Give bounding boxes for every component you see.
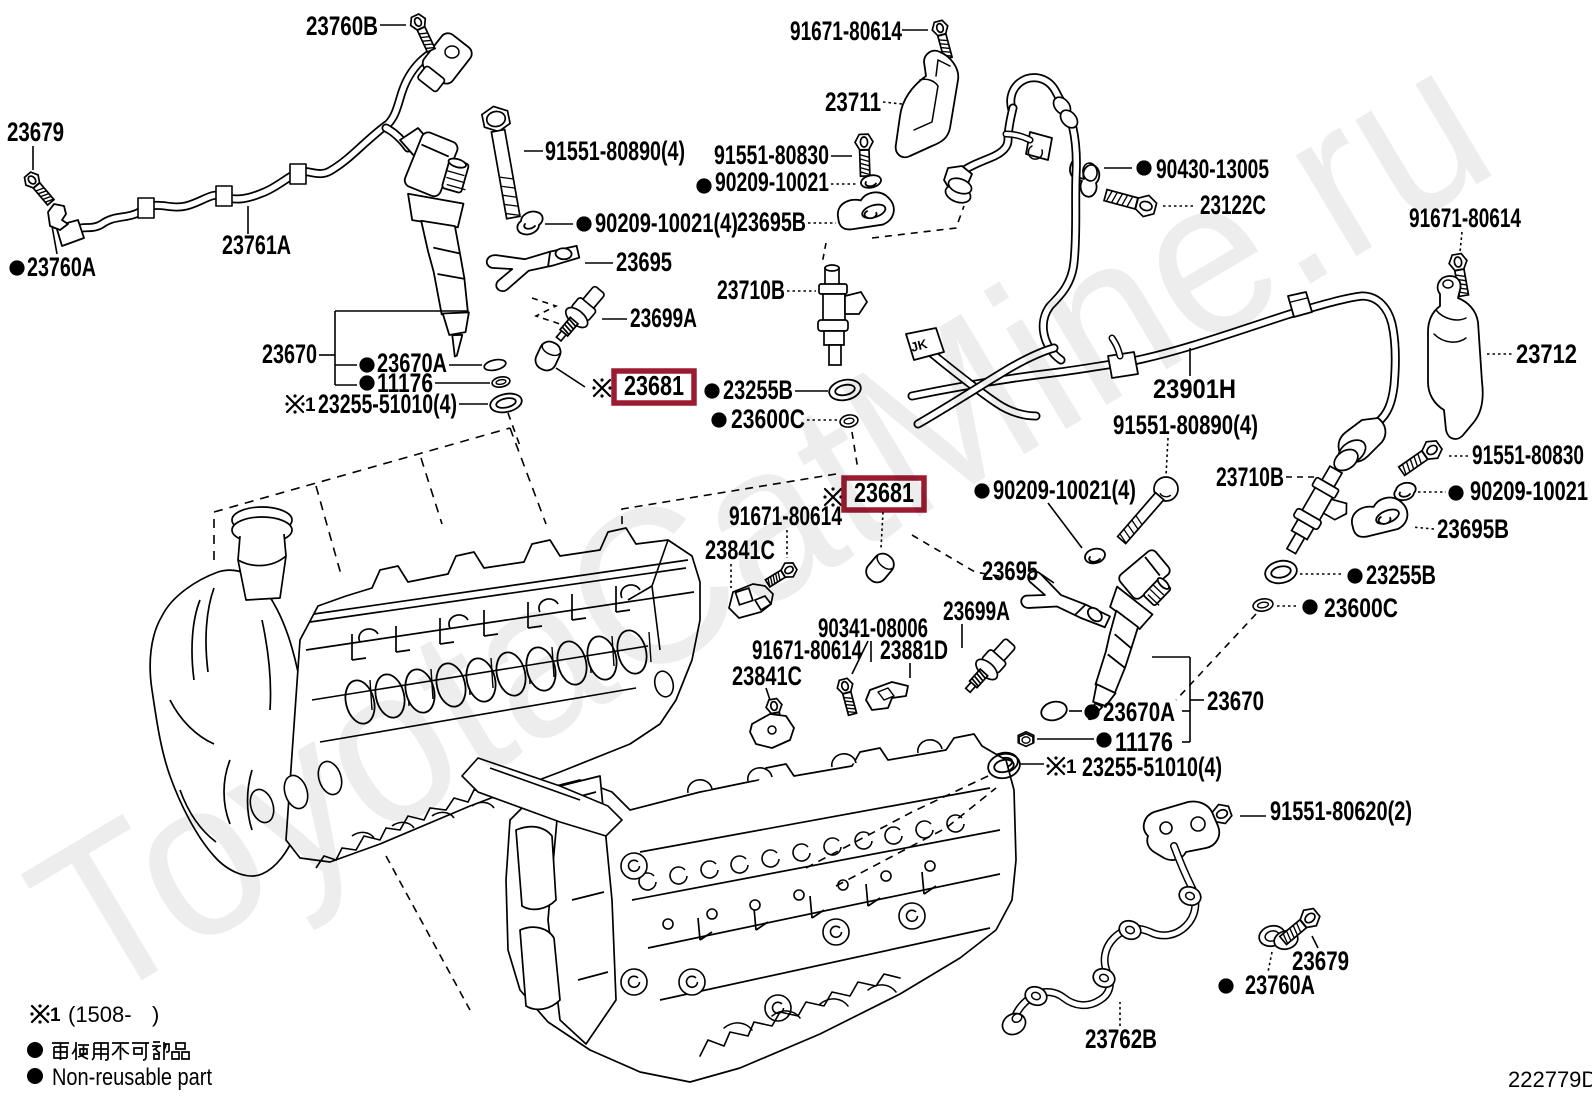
svg-text:23679: 23679 [7,117,64,147]
svg-text:23760A: 23760A [1245,970,1315,1000]
svg-text:23760A: 23760A [27,252,96,282]
svg-text:1: 1 [305,395,316,416]
svg-text:23712: 23712 [1516,339,1577,369]
svg-text:23681: 23681 [624,370,684,401]
svg-text:23255B: 23255B [1366,560,1436,590]
svg-text:91551-80890(4): 91551-80890(4) [545,136,685,166]
svg-text:90209-10021(4): 90209-10021(4) [595,208,738,238]
svg-text:1: 1 [50,1005,61,1026]
svg-text:23710B: 23710B [717,275,785,305]
svg-text:23600C: 23600C [1324,593,1398,623]
svg-text:23695: 23695 [982,556,1038,586]
svg-text:23711: 23711 [825,87,881,117]
svg-text:23670A: 23670A [1103,697,1175,727]
svg-text:90209-10021: 90209-10021 [1470,476,1588,506]
svg-text:23695: 23695 [616,247,672,277]
svg-text:23760B: 23760B [306,11,378,41]
svg-text:23695B: 23695B [1437,514,1509,544]
svg-text:23255-51010(4): 23255-51010(4) [318,389,457,419]
svg-text:91551-80830: 91551-80830 [714,140,829,170]
svg-text:90209-10021: 90209-10021 [715,167,829,197]
svg-text:23761A: 23761A [222,230,291,260]
svg-text:23699A: 23699A [943,596,1010,626]
svg-text:23255-51010(4): 23255-51010(4) [1082,752,1222,782]
svg-text:23710B: 23710B [1216,462,1284,492]
svg-text:Non-reusable part: Non-reusable part [52,1064,212,1091]
svg-text:91551-80620(2): 91551-80620(2) [1270,796,1412,826]
svg-text:222779D: 222779D [1508,1067,1592,1092]
svg-text:23695B: 23695B [737,207,806,237]
svg-text:1: 1 [1066,757,1077,778]
svg-text:91671-80614: 91671-80614 [790,16,902,46]
svg-text:23762B: 23762B [1085,1024,1157,1054]
svg-text:23699A: 23699A [630,303,697,333]
svg-text:23670: 23670 [1207,686,1264,716]
svg-text:91551-80830: 91551-80830 [1472,440,1584,470]
svg-text:23881D: 23881D [880,635,948,665]
svg-text:23670: 23670 [262,339,317,369]
